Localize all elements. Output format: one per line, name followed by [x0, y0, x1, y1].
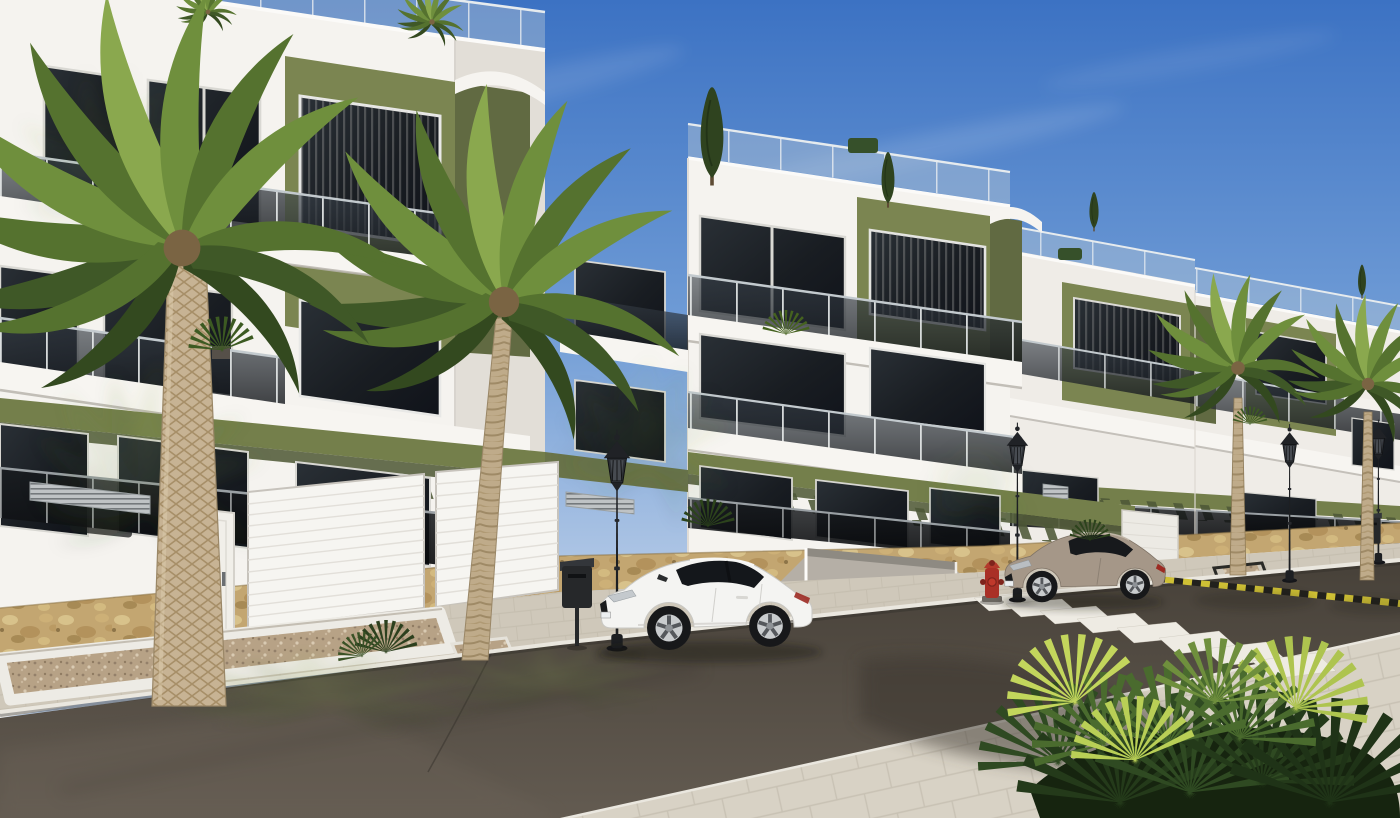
garage-door-1 — [248, 474, 424, 629]
rooftop-hedge-2 — [1058, 248, 1082, 260]
car-white-rear-wheel — [749, 605, 791, 647]
door-handle — [222, 572, 226, 586]
car-gray-plate — [1005, 581, 1014, 586]
vent-grille-3 — [1043, 484, 1068, 499]
scene-canvas: Sunny exterior render of a new-build mod… — [0, 0, 1400, 818]
rooftop-hedge-1 — [848, 138, 878, 153]
car-white-front-wheel — [647, 606, 691, 650]
car-gray-front-wheel — [1026, 571, 1057, 602]
car-white-plate — [601, 612, 611, 618]
architectural-render: 3d-architectural-render Sunny exterior r… — [0, 0, 1400, 818]
car-white-handle — [736, 596, 748, 599]
car-gray-rear-wheel — [1120, 570, 1150, 600]
